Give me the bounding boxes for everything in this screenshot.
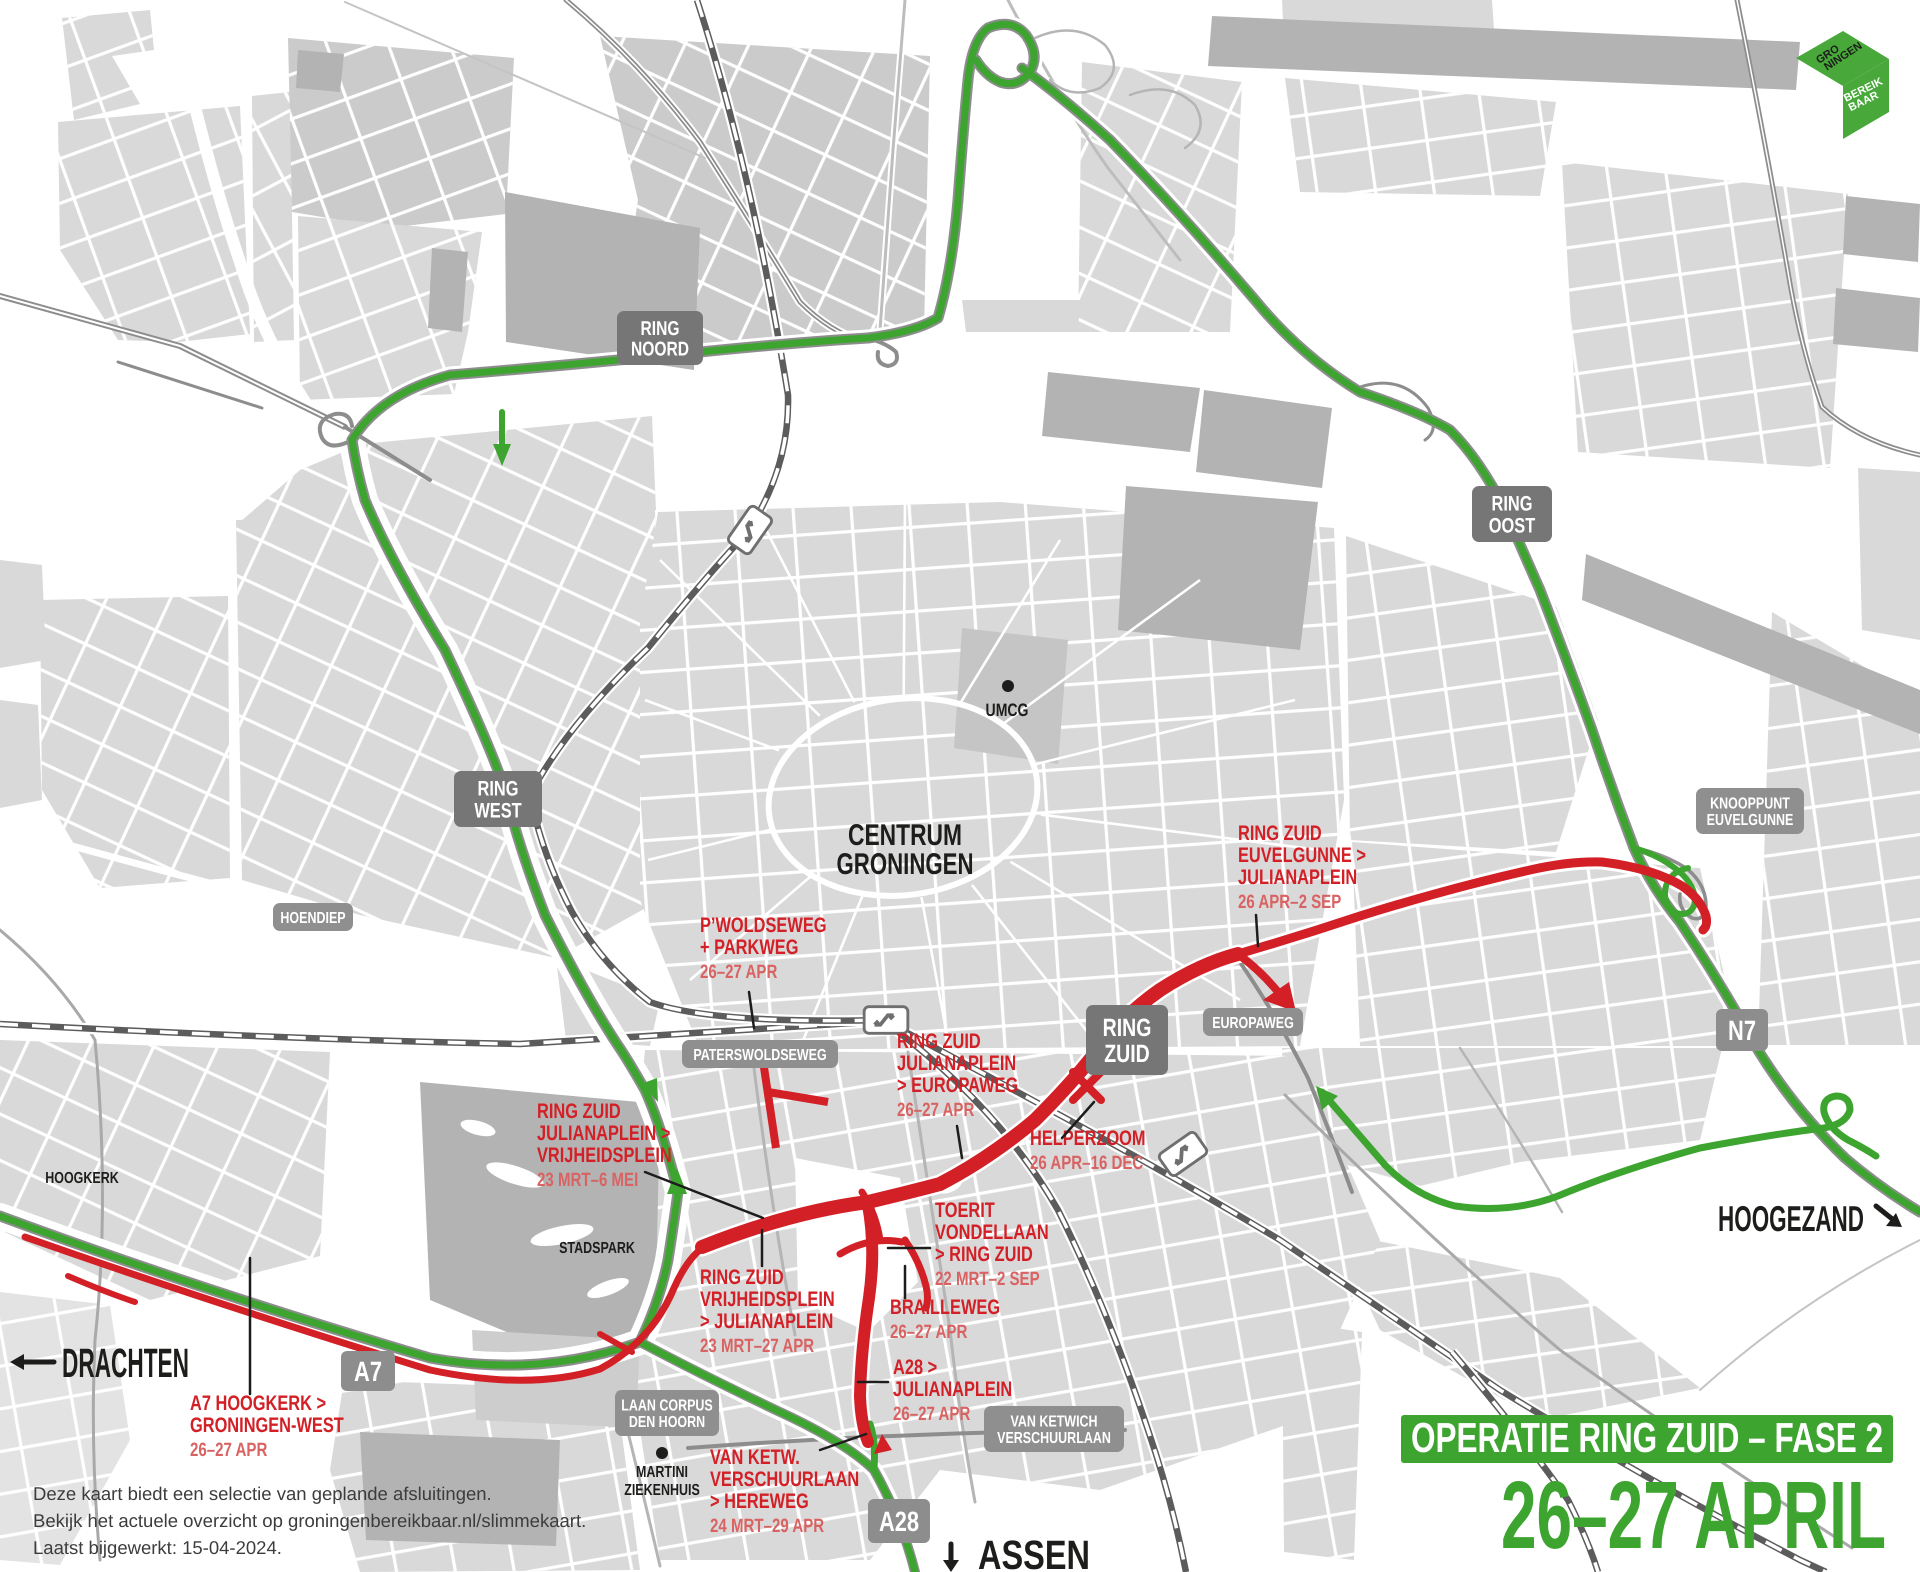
svg-text:VRIJHEIDSPLEIN: VRIJHEIDSPLEIN: [537, 1144, 672, 1167]
svg-text:DEN HOORN: DEN HOORN: [629, 1414, 705, 1431]
svg-text:RING ZUID: RING ZUID: [1238, 822, 1322, 845]
svg-text:DRACHTEN: DRACHTEN: [62, 1340, 189, 1386]
svg-text:26 APR–16 DEC: 26 APR–16 DEC: [1030, 1153, 1143, 1174]
svg-text:N7: N7: [1728, 1015, 1756, 1046]
svg-text:MARTINI: MARTINI: [636, 1464, 688, 1481]
svg-text:Laatst bijgewerkt: 15-04-2024.: Laatst bijgewerkt: 15-04-2024.: [33, 1537, 282, 1558]
svg-text:26–27 APR: 26–27 APR: [893, 1404, 970, 1425]
svg-text:26–27 APRIL: 26–27 APRIL: [1501, 1462, 1886, 1569]
svg-text:22 MRT–2 SEP: 22 MRT–2 SEP: [935, 1269, 1040, 1290]
svg-text:> HEREWEG: > HEREWEG: [710, 1490, 809, 1513]
svg-text:JULIANAPLEIN: JULIANAPLEIN: [1238, 866, 1357, 889]
svg-text:A28 >: A28 >: [893, 1356, 937, 1379]
svg-text:BRAILLEWEG: BRAILLEWEG: [890, 1296, 1000, 1319]
svg-text:Deze kaart biedt een selectie: Deze kaart biedt een selectie van geplan…: [33, 1483, 492, 1504]
svg-text:UMCG: UMCG: [986, 700, 1029, 720]
svg-text:ASSEN: ASSEN: [978, 1532, 1090, 1572]
svg-text:STADSPARK: STADSPARK: [559, 1240, 635, 1257]
svg-text:A7: A7: [354, 1356, 382, 1387]
svg-text:JULIANAPLEIN: JULIANAPLEIN: [893, 1378, 1012, 1401]
svg-text:RING: RING: [1103, 1014, 1152, 1042]
svg-text:GRONINGEN: GRONINGEN: [837, 848, 974, 881]
svg-text:WEST: WEST: [474, 799, 521, 822]
svg-text:26–27 APR: 26–27 APR: [700, 962, 777, 983]
svg-text:TOERIT: TOERIT: [935, 1199, 995, 1222]
svg-text:OPERATIE RING ZUID – FASE 2: OPERATIE RING ZUID – FASE 2: [1411, 1414, 1883, 1461]
svg-text:PATERSWOLDSEWEG: PATERSWOLDSEWEG: [693, 1047, 826, 1064]
svg-text:HELPERZOOM: HELPERZOOM: [1030, 1127, 1146, 1150]
svg-text:24 MRT–29 APR: 24 MRT–29 APR: [710, 1516, 824, 1537]
svg-text:> EUROPAWEG: > EUROPAWEG: [897, 1074, 1018, 1097]
svg-text:ZUID: ZUID: [1104, 1040, 1149, 1068]
svg-text:VRIJHEIDSPLEIN: VRIJHEIDSPLEIN: [700, 1288, 835, 1311]
svg-text:A28: A28: [879, 1506, 919, 1537]
svg-text:26–27 APR: 26–27 APR: [890, 1322, 967, 1343]
svg-text:26–27 APR: 26–27 APR: [190, 1440, 267, 1461]
svg-text:JULIANAPLEIN: JULIANAPLEIN: [897, 1052, 1016, 1075]
svg-text:23 MRT–6 MEI: 23 MRT–6 MEI: [537, 1170, 638, 1191]
svg-text:> JULIANAPLEIN: > JULIANAPLEIN: [700, 1310, 833, 1333]
svg-text:KNOOPPUNT: KNOOPPUNT: [1710, 795, 1790, 812]
svg-text:RING: RING: [641, 318, 680, 340]
svg-text:RING: RING: [1492, 493, 1533, 516]
svg-text:Bekijk het actuele overzicht o: Bekijk het actuele overzicht op groninge…: [33, 1510, 586, 1531]
svg-text:VONDELLAAN: VONDELLAAN: [935, 1221, 1049, 1244]
svg-text:NOORD: NOORD: [631, 339, 689, 361]
svg-text:+ PARKWEG: + PARKWEG: [700, 936, 798, 959]
svg-text:A7 HOOGKERK >: A7 HOOGKERK >: [190, 1392, 326, 1415]
svg-text:GRONINGEN-WEST: GRONINGEN-WEST: [190, 1414, 344, 1437]
svg-text:RING ZUID: RING ZUID: [897, 1030, 981, 1053]
svg-text:VERSCHUURLAAN: VERSCHUURLAAN: [997, 1430, 1111, 1447]
svg-text:26 APR–2 SEP: 26 APR–2 SEP: [1238, 892, 1341, 913]
svg-text:RING: RING: [478, 778, 519, 801]
svg-text:EUROPAWEG: EUROPAWEG: [1212, 1015, 1294, 1032]
svg-text:EUVELGUNNE >: EUVELGUNNE >: [1238, 844, 1366, 867]
svg-text:OOST: OOST: [1489, 514, 1536, 537]
svg-text:VAN KETW.: VAN KETW.: [710, 1446, 800, 1469]
svg-text:RING ZUID: RING ZUID: [537, 1100, 621, 1123]
svg-text:26–27 APR: 26–27 APR: [897, 1100, 974, 1121]
svg-text:RING ZUID: RING ZUID: [700, 1266, 784, 1289]
svg-text:ZIEKENHUIS: ZIEKENHUIS: [624, 1482, 700, 1499]
svg-text:JULIANAPLEIN >: JULIANAPLEIN >: [537, 1122, 670, 1145]
svg-text:> RING ZUID: > RING ZUID: [935, 1243, 1033, 1266]
svg-text:23 MRT–27 APR: 23 MRT–27 APR: [700, 1336, 814, 1357]
svg-text:EUVELGUNNE: EUVELGUNNE: [1707, 812, 1794, 829]
svg-text:HOOGKERK: HOOGKERK: [45, 1170, 119, 1187]
svg-text:HOENDIEP: HOENDIEP: [280, 910, 345, 927]
svg-text:LAAN CORPUS: LAAN CORPUS: [621, 1397, 713, 1414]
svg-text:P’WOLDSEWEG: P’WOLDSEWEG: [700, 914, 826, 937]
svg-text:HOOGEZAND: HOOGEZAND: [1718, 1198, 1864, 1239]
svg-text:VAN KETWICH: VAN KETWICH: [1010, 1413, 1097, 1430]
svg-text:VERSCHUURLAAN: VERSCHUURLAAN: [710, 1468, 859, 1491]
